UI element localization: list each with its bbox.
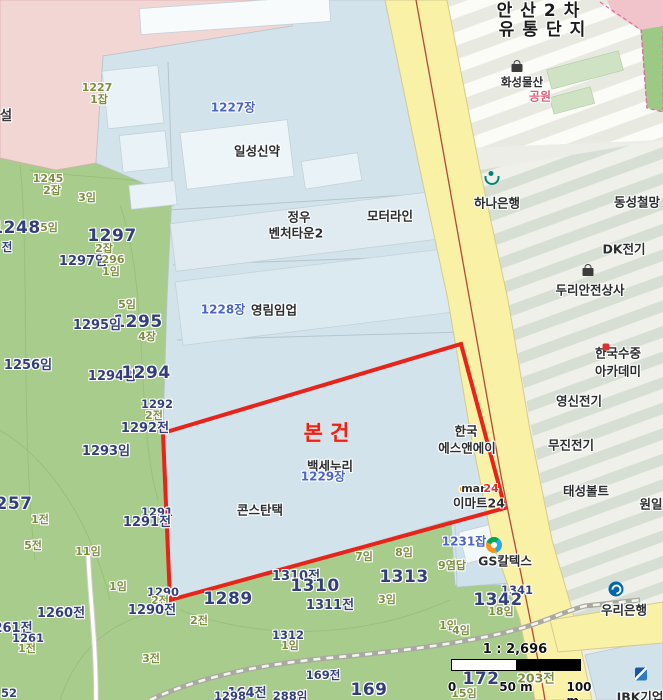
poi-hanguk-sna-line1[interactable]: 한국 bbox=[454, 424, 477, 437]
scale-segment-black bbox=[517, 660, 581, 670]
woori-bank-logo-icon[interactable] bbox=[609, 582, 624, 597]
poi-hwaseong-mulsan[interactable]: 화성물산 bbox=[501, 76, 543, 88]
lot-1245: 1245 bbox=[33, 173, 64, 185]
hwaseong-shopping-bag-icon[interactable] bbox=[512, 64, 523, 72]
poi-jungwoo-line1[interactable]: 정우 bbox=[287, 210, 310, 223]
lot-11im: 11임 bbox=[75, 546, 100, 558]
poi-emart24[interactable]: 이마트24 bbox=[453, 496, 505, 509]
lot-3im-b: 3임 bbox=[378, 594, 396, 606]
lot-1289: 1289 bbox=[203, 591, 252, 609]
lot-1298: 1298 bbox=[214, 690, 246, 700]
lot-jeon-a: 전 bbox=[2, 241, 13, 253]
lot-1297im: 1297임 bbox=[59, 255, 107, 269]
scale-segment-white bbox=[452, 660, 517, 670]
lot-9yeomdap: 9염답 bbox=[438, 560, 466, 572]
lot-1313: 1313 bbox=[379, 569, 428, 587]
lot-5im-b: 5임 bbox=[118, 299, 136, 311]
lot-1293im: 1293임 bbox=[82, 445, 130, 459]
poi-dongseong[interactable]: 동성철망 bbox=[614, 195, 660, 208]
district-title-line1[interactable]: 안산2차 bbox=[497, 3, 588, 21]
lot-3jeon: 3전 bbox=[142, 653, 160, 665]
subject-parcel-label: 본건 bbox=[304, 422, 357, 444]
poi-yonglim[interactable]: 영림임업 bbox=[251, 303, 297, 316]
lot-1im-a: 1임 bbox=[102, 266, 120, 278]
lot-52: 52 bbox=[1, 687, 17, 699]
poi-ilseong-sinyak[interactable]: 일성신약 bbox=[234, 144, 280, 157]
lot-1227: 1227 bbox=[82, 82, 113, 94]
lot-1im-b: 1임 bbox=[109, 581, 127, 593]
lot-5im-a: 5임 bbox=[40, 222, 58, 234]
poi-dk-electric[interactable]: DK전기 bbox=[602, 242, 645, 255]
scuba-academy-icon[interactable] bbox=[603, 344, 610, 351]
poi-constantech[interactable]: 콘스탄택 bbox=[237, 503, 283, 516]
lot-1310: 1310 bbox=[290, 578, 339, 596]
lot-1294: 1294 bbox=[121, 365, 170, 383]
lot-5jeon: 5전 bbox=[24, 540, 42, 552]
lot-1229jang: 1229장 bbox=[301, 471, 345, 484]
lot-1291jeon: 1291전 bbox=[123, 516, 171, 530]
poi-wonil[interactable]: 원일 bbox=[639, 497, 662, 510]
poi-jungwoo-line2[interactable]: 벤처타운2 bbox=[269, 226, 324, 239]
ibk-bank-logo-icon[interactable] bbox=[635, 668, 647, 681]
lot-4im: 4임 bbox=[452, 625, 470, 637]
lot-1248: 1248 bbox=[0, 220, 41, 238]
lot-1292: 1292 bbox=[141, 398, 173, 410]
lot-1227jang: 1227장 bbox=[211, 102, 255, 115]
lot-1295im: 1295임 bbox=[73, 319, 121, 333]
map-labels-layer: 안산2차유통단지화성물산공원설12271잡1227장일성신약12452잡3임정우… bbox=[0, 0, 663, 700]
scale-tick-50: 50 m bbox=[499, 680, 532, 694]
poi-yeongshin[interactable]: 영신전기 bbox=[556, 394, 602, 407]
lot-1311jeon: 1311전 bbox=[306, 599, 354, 613]
lot-3im: 3임 bbox=[78, 192, 96, 204]
poi-woori-bank[interactable]: 우리은행 bbox=[601, 603, 647, 616]
lot-18im: 18임 bbox=[488, 606, 513, 618]
lot-1292jeon: 1292전 bbox=[121, 422, 169, 436]
map-viewport[interactable]: 안산2차유통단지화성물산공원설12271잡1227장일성신약12452잡3임정우… bbox=[0, 0, 663, 700]
scale-bar: 1 : 2,696 0 50 m 100 m bbox=[449, 642, 581, 671]
poi-mujin[interactable]: 무진전기 bbox=[548, 438, 594, 451]
lot-1jeon-b: 1전 bbox=[18, 643, 36, 655]
poi-taeseong-bolt[interactable]: 태성볼트 bbox=[563, 484, 609, 497]
gs-caltex-logo-icon[interactable] bbox=[486, 537, 502, 553]
lot-1227-1jap: 1잡 bbox=[90, 94, 108, 106]
duri-shopping-bag-icon[interactable] bbox=[583, 268, 594, 276]
lot-1260jeon: 1260전 bbox=[37, 607, 85, 621]
scale-bar-segments bbox=[451, 659, 581, 671]
scale-tick-100: 100 m bbox=[566, 680, 591, 700]
poi-hanguk-sna-line2[interactable]: 에스앤에이 bbox=[438, 441, 496, 454]
lot-296: 296 bbox=[102, 254, 125, 266]
lot-1228jang: 1228장 bbox=[201, 304, 245, 317]
lot-1231jap: 1231잡 bbox=[442, 536, 486, 549]
label-seol[interactable]: 설 bbox=[0, 109, 12, 123]
lot-4jang: 4장 bbox=[138, 331, 156, 343]
poi-gs-caltex[interactable]: GS칼텍스 bbox=[478, 554, 532, 567]
lot-1jeon-a: 1전 bbox=[31, 514, 49, 526]
lot-7im: 7임 bbox=[355, 551, 373, 563]
lot-1290jeon: 1290전 bbox=[128, 604, 176, 618]
lot-169: 169 bbox=[351, 682, 388, 700]
poi-park: 공원 bbox=[529, 91, 551, 104]
lot-1im-c: 1임 bbox=[281, 640, 299, 652]
scale-ratio-text: 1 : 2,696 bbox=[449, 642, 581, 657]
lot-2jeon-a: 2전 bbox=[145, 410, 163, 422]
lot-169jeon: 169전 bbox=[306, 669, 341, 681]
lot-1245-2jap: 2잡 bbox=[43, 185, 61, 197]
poi-sujung-line2[interactable]: 아카데미 bbox=[595, 364, 641, 377]
poi-hana-bank[interactable]: 하나은행 bbox=[474, 196, 520, 209]
hana-bank-logo-icon[interactable] bbox=[484, 171, 499, 185]
lot-8im: 8임 bbox=[395, 547, 413, 559]
lot-288im: 288임 bbox=[273, 690, 308, 700]
scale-tick-0: 0 bbox=[448, 680, 456, 694]
lot-257: 257 bbox=[0, 496, 33, 514]
district-title-line2[interactable]: 유통단지 bbox=[499, 22, 594, 40]
emart-logo-24: 24 bbox=[483, 483, 498, 495]
poi-duri-safety[interactable]: 두리안전상사 bbox=[555, 283, 624, 296]
poi-ibk-bank[interactable]: IBK기업 bbox=[617, 690, 663, 700]
lot-2jeon-c: 2전 bbox=[190, 615, 208, 627]
poi-motorline[interactable]: 모터라인 bbox=[367, 209, 413, 222]
lot-1256im: 1256임 bbox=[4, 359, 52, 373]
